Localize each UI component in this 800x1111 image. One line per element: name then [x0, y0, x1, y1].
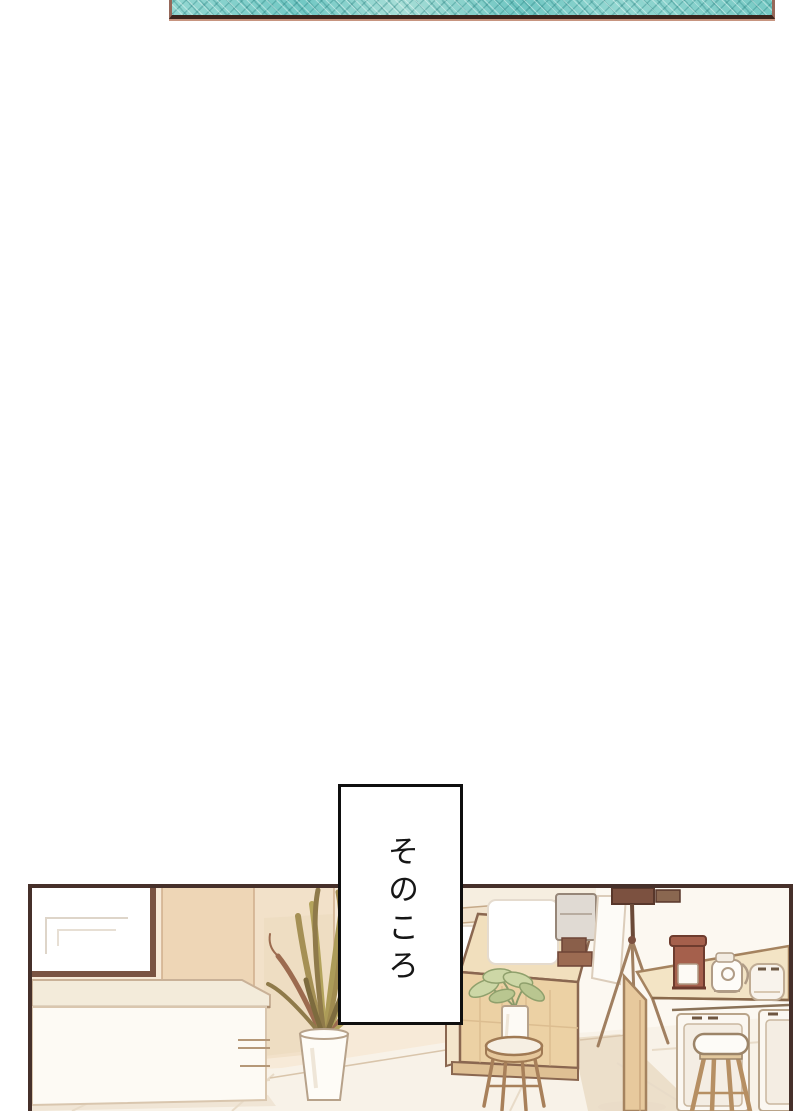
- toaster: [750, 964, 784, 1000]
- manga-page: そのころ: [0, 0, 800, 1111]
- panel-top-teal-sliver: [169, 0, 775, 19]
- menu-sign: [488, 900, 558, 964]
- coffee-maker: [670, 936, 706, 988]
- caption-text: そのころ: [378, 787, 423, 1022]
- white-counter: [32, 980, 270, 1105]
- espresso-machine: [556, 894, 596, 966]
- plant-vase: [300, 1029, 348, 1100]
- fridge-door-right: [759, 1010, 789, 1111]
- whiteboard-frame: [32, 888, 153, 974]
- caption-box: そのころ: [338, 784, 463, 1025]
